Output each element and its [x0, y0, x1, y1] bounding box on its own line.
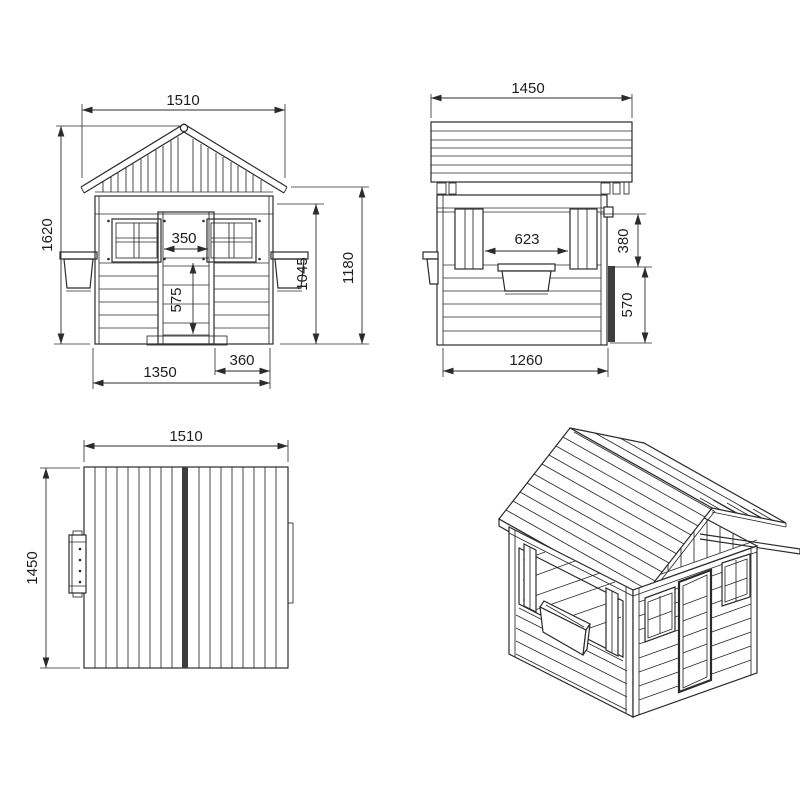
dim-label-front-eaves-height: 1180 [340, 252, 357, 284]
iso-front-window-right [722, 554, 750, 606]
dim-label-front-total-width: 1510 [166, 92, 199, 109]
top-ridge [182, 467, 188, 668]
dim-label-front-door-side-offset: 360 [229, 352, 254, 369]
dim-side-opening-height: 380 [600, 214, 652, 267]
side-flower-box [498, 264, 555, 294]
drawing-canvas: 1510 1620 1045 1180 350 575 1350 [0, 0, 800, 800]
dim-label-side-roof-length: 1450 [511, 80, 544, 97]
side-wall [423, 195, 615, 345]
top-roof [69, 467, 293, 668]
top-right-tab [288, 523, 293, 603]
dim-top-width: 1510 [84, 428, 288, 462]
side-left-protrusion [423, 252, 438, 284]
side-roof [431, 122, 632, 194]
dim-label-front-total-height: 1620 [39, 218, 56, 251]
front-window-right [202, 219, 261, 262]
front-wall [95, 196, 273, 344]
roof-peak-ornament [180, 124, 187, 131]
side-elevation-view: 1450 623 380 570 1260 [423, 80, 652, 377]
dim-label-side-base-length: 1260 [509, 352, 542, 369]
dim-front-total-width: 1510 [82, 92, 285, 178]
dim-side-roof-length: 1450 [431, 80, 632, 118]
dim-label-front-wall-height: 1045 [294, 257, 311, 290]
dim-label-top-depth: 1450 [24, 551, 41, 584]
dim-label-top-width: 1510 [169, 428, 202, 445]
side-opening-post-left [455, 209, 483, 269]
dim-front-door-width: 350 [164, 230, 208, 249]
dim-label-front-door-width: 350 [171, 230, 196, 247]
dim-label-side-opening-height: 380 [615, 228, 632, 253]
playhouse-technical-drawing: 1510 1620 1045 1180 350 575 1350 [0, 0, 800, 800]
dim-label-front-door-height: 575 [168, 287, 185, 312]
front-flower-box-left [60, 252, 97, 291]
dim-label-front-base-width: 1350 [143, 364, 176, 381]
front-roof [81, 124, 287, 193]
side-opening-post-right [570, 209, 597, 269]
dim-label-side-opening-width: 623 [514, 231, 539, 248]
dim-label-side-lower-wall-height: 570 [619, 292, 636, 317]
top-flower-box [69, 531, 86, 597]
isometric-view [499, 428, 800, 717]
top-view: 1510 1450 [24, 428, 293, 668]
side-front-edge-strip [608, 266, 615, 342]
dim-side-lower-wall-height: 570 [610, 267, 652, 343]
dim-front-total-height: 1620 [39, 126, 180, 344]
front-window-left [107, 219, 166, 262]
dim-front-base-width: 1350 360 [93, 348, 270, 389]
dim-side-base-length: 1260 [443, 348, 608, 377]
dim-side-opening-width: 623 [485, 231, 568, 251]
iso-front-door [679, 570, 711, 692]
front-elevation-view: 1510 1620 1045 1180 350 575 1350 [39, 92, 369, 389]
